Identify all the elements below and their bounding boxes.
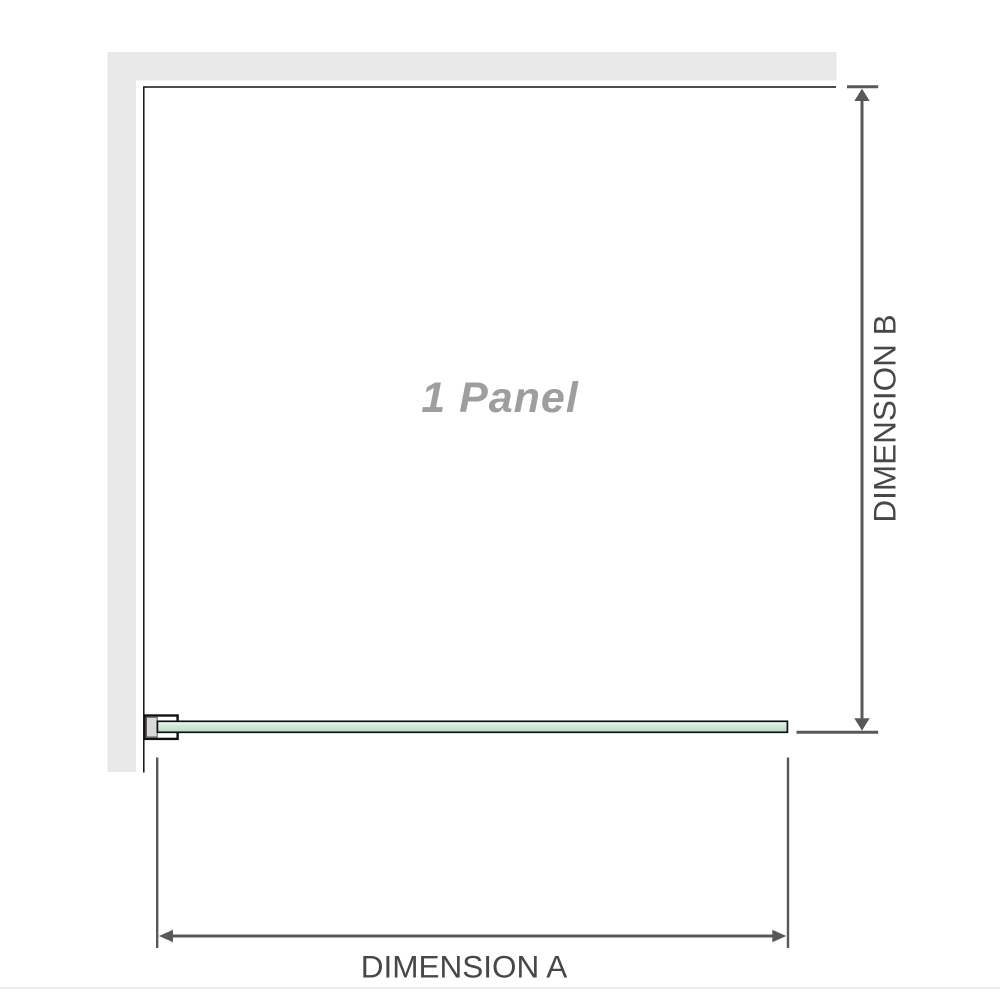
svg-text:1 Panel: 1 Panel xyxy=(421,374,579,422)
svg-text:DIMENSION A: DIMENSION A xyxy=(361,949,568,985)
svg-text:DIMENSION B: DIMENSION B xyxy=(867,314,903,522)
